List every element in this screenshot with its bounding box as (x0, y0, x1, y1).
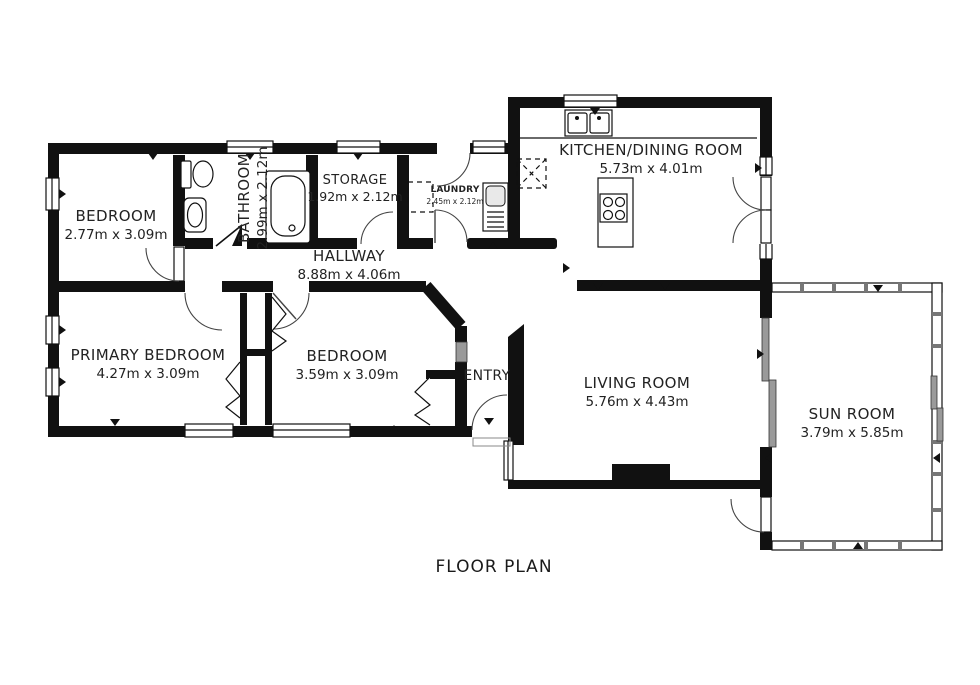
kitchen-french-doors (733, 176, 773, 244)
room-dims: 3.79m x 5.85m (801, 425, 904, 443)
room-label-bedroom-top: BEDROOM 2.77m x 3.09m (65, 207, 168, 245)
rear-door (731, 497, 773, 532)
room-dims: 8.88m x 4.06m (298, 267, 401, 285)
room-name: SUN ROOM (801, 405, 904, 425)
pantry-unit (517, 159, 546, 188)
bedroom-door (146, 247, 184, 281)
floor-plan-page: BEDROOM 2.77m x 3.09m BATHROOM 2.99m x 2… (0, 0, 980, 685)
room-dims: 1.92m x 2.12m (307, 189, 402, 206)
room-name: LIVING ROOM (584, 374, 690, 394)
kitchen-sink-icon (565, 110, 612, 136)
room-dims: 3.59m x 3.09m (296, 367, 399, 385)
fireplace (612, 464, 670, 489)
sliding-door (759, 318, 776, 447)
room-label-sun-room: SUN ROOM 3.79m x 5.85m (801, 405, 904, 443)
room-name: HALLWAY (298, 247, 401, 267)
room-dims: 2.99m x 2.12m (255, 147, 273, 250)
room-name: PRIMARY BEDROOM (71, 346, 226, 366)
basin-icon (184, 198, 206, 232)
room-label-kitchen-dining: KITCHEN/DINING ROOM 5.73m x 4.01m (559, 141, 743, 179)
room-name: BEDROOM (296, 347, 399, 367)
room-dims: 5.73m x 4.01m (559, 161, 743, 179)
floor-plan-drawing (0, 0, 980, 685)
room-name: KITCHEN/DINING ROOM (559, 141, 743, 161)
plan-title: FLOOR PLAN (435, 557, 552, 577)
room-name: ENTRY (463, 367, 510, 385)
room-name: BEDROOM (65, 207, 168, 227)
storage-door (361, 212, 393, 244)
primary-bedroom-door (185, 293, 222, 330)
laundry-back-door (437, 153, 470, 186)
closet-bifold-doors (226, 362, 240, 418)
room-dims: 4.27m x 3.09m (71, 366, 226, 384)
entry-door (472, 395, 507, 430)
toilet-icon (181, 161, 213, 188)
entry-window (456, 342, 467, 362)
kitchen-island (598, 178, 633, 247)
closet-bifold-doors (415, 377, 430, 425)
room-label-entry: ENTRY (463, 367, 510, 385)
room-dims: 2.45m x 2.12m (426, 197, 483, 207)
room-label-hallway: HALLWAY 8.88m x 4.06m (298, 247, 401, 285)
laundry-hall-door (435, 210, 467, 243)
room-name: BATHROOM (235, 147, 255, 250)
room-name: STORAGE (307, 172, 402, 189)
room-label-primary-bedroom: PRIMARY BEDROOM 4.27m x 3.09m (71, 346, 226, 384)
room-label-living-room: LIVING ROOM 5.76m x 4.43m (584, 374, 690, 412)
room-label-laundry: LAUNDRY 2.45m x 2.12m (426, 185, 483, 207)
room-label-bathroom: BATHROOM 2.99m x 2.12m (235, 147, 273, 250)
room-name: LAUNDRY (426, 185, 483, 197)
room-dims: 5.76m x 4.43m (584, 394, 690, 412)
room-dims: 2.77m x 3.09m (65, 227, 168, 245)
room-label-storage: STORAGE 1.92m x 2.12m (307, 172, 402, 206)
laundry-trough-icon (483, 183, 508, 231)
room-label-bedroom-middle: BEDROOM 3.59m x 3.09m (296, 347, 399, 385)
